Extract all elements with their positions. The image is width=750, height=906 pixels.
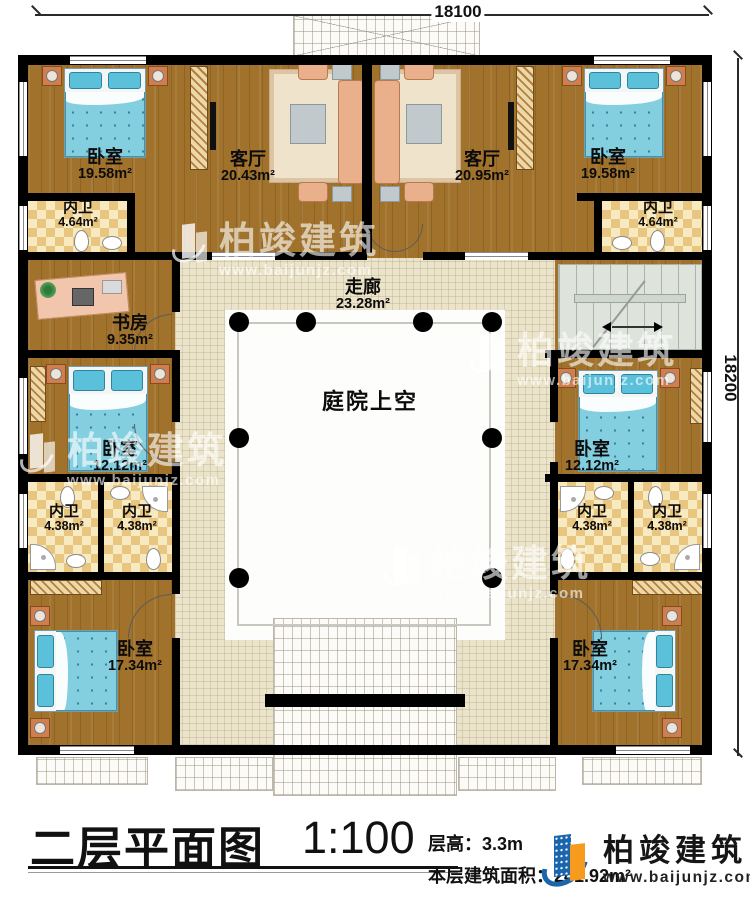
watermark-brand-url: www.baijunjz.com [431,585,591,602]
wall-segment [18,572,180,580]
window [19,494,27,548]
room-area: 19.58m² [78,167,132,183]
room-label-bedroom-bl: 卧室 17.34m² [108,640,162,675]
room-area: 4.38m² [572,520,612,534]
room-label-bath-bl1: 内卫 4.38m² [44,504,84,534]
room-label-bath-br1: 内卫 4.38m² [572,504,612,534]
dimension-label-width: 18100 [431,2,484,22]
window [19,206,27,250]
room-name: 内卫 [638,200,678,216]
watermark-brand-name: 柏竣建筑 [431,545,591,582]
watermark-brand-url: www.baijunjz.com [67,472,227,489]
brand-building-icon [18,432,60,480]
wall-segment [528,252,712,260]
room-label-bedroom-tl: 卧室 19.58m² [78,148,132,183]
wall-segment [550,638,558,745]
window [70,56,146,64]
watermark: 柏竣建筑 www.baijunjz.com [382,545,591,602]
room-area: 20.95m² [455,169,509,185]
room-name: 卧室 [108,640,162,659]
watermark: 柏竣建筑 www.baijunjz.com [170,222,379,279]
room-name: 内卫 [58,200,98,216]
room-label-bath-bl2: 内卫 4.38m² [117,504,157,534]
room-label-bath-br2: 内卫 4.38m² [647,504,687,534]
drawing-title: 二层平面图 [30,812,265,877]
room-name: 卧室 [581,148,635,167]
room-label-living-tr: 客厅 20.95m² [455,150,509,185]
room-name: 书房 [107,314,153,333]
room-area: 20.43m² [221,169,275,185]
window [703,206,711,250]
column [229,568,249,588]
floor-plan-page: 卧室 19.58m² 客厅 20.43m² 客厅 20.95m² 卧室 19.5… [0,0,750,906]
dimension-label-height: 18200 [720,348,740,408]
room-label-bedroom-br: 卧室 17.34m² [563,640,617,675]
room-area: 12.12m² [565,459,619,475]
room-name: 走廊 [336,278,390,297]
logo-blue-tower [554,834,571,877]
room-label-bath-tl: 内卫 4.64m² [58,200,98,230]
room-area: 23.28m² [336,297,390,313]
column [482,312,502,332]
room-area: 19.58m² [581,167,635,183]
window [594,56,670,64]
logo-orange-tower [570,843,585,881]
window [60,746,134,754]
room-label-study: 书房 9.35m² [107,314,153,349]
eave-bottom-left [36,757,148,785]
room-name: 内卫 [647,504,687,520]
wall-segment [172,638,180,745]
room-area: 4.64m² [58,216,98,230]
room-area: 9.35m² [107,333,153,349]
room-name: 卧室 [78,148,132,167]
room-name: 客厅 [455,150,509,169]
column [229,312,249,332]
room-label-bedroom-mr: 卧室 12.12m² [565,440,619,475]
room-label-courtyard: 庭院上空 [322,390,418,414]
wall-segment [98,478,104,574]
brand-website: www.baijunjz.com [603,869,750,887]
room-area: 4.38m² [647,520,687,534]
room-area: 17.34m² [563,659,617,675]
brand-building-icon [170,222,212,270]
room-label-living-tl: 客厅 20.43m² [221,150,275,185]
window [19,82,27,156]
wall-segment [265,694,465,707]
room-name: 庭院上空 [322,390,418,414]
window [465,252,528,260]
room-name: 内卫 [117,504,157,520]
room-name: 内卫 [572,504,612,520]
column [296,312,316,332]
window [616,746,690,754]
room-label-bath-tr: 内卫 4.64m² [638,200,678,230]
watermark-brand-url: www.baijunjz.com [517,372,677,389]
room-name: 客厅 [221,150,275,169]
watermark: 柏竣建筑 www.baijunjz.com [468,332,677,389]
window [703,494,711,548]
room-area: 17.34m² [108,659,162,675]
room-name: 卧室 [563,640,617,659]
window [703,372,711,442]
wall-segment [172,350,180,422]
drawing-scale: 1:100 [302,812,415,864]
dimension-line-top [35,14,709,16]
room-area: 4.38m² [117,520,157,534]
brand-building-icon [468,332,510,380]
wall-segment [628,478,634,574]
wall-segment [18,350,180,358]
room-area: 4.38m² [44,520,84,534]
brand-building-icon [540,833,594,891]
room-label-corridor: 走廊 23.28m² [336,278,390,313]
room-area: 4.64m² [638,216,678,230]
room-name: 内卫 [44,504,84,520]
watermark-brand-name: 柏竣建筑 [67,432,227,469]
column [482,428,502,448]
wall-segment [127,193,135,256]
wall-segment [423,252,465,260]
room-label-bedroom-tr: 卧室 19.58m² [581,148,635,183]
window [703,82,711,156]
room-name: 卧室 [565,440,619,459]
floor-height-note: 层高：3.3m [428,830,523,856]
brand-name: 柏竣建筑 [603,833,750,869]
brand-building-icon [382,545,424,593]
watermark-brand-name: 柏竣建筑 [517,332,677,369]
eave-bottom-centerleft [175,757,273,791]
watermark-brand-name: 柏竣建筑 [219,222,379,259]
wall-segment [594,193,602,256]
brand-logo: 柏竣建筑 www.baijunjz.com [540,833,750,891]
eave-bottom-centerright [458,757,556,791]
watermark: 柏竣建筑 www.baijunjz.com [18,432,227,489]
column [229,428,249,448]
eave-bottom-right [582,757,702,785]
column [413,312,433,332]
watermark-brand-url: www.baijunjz.com [219,262,379,279]
